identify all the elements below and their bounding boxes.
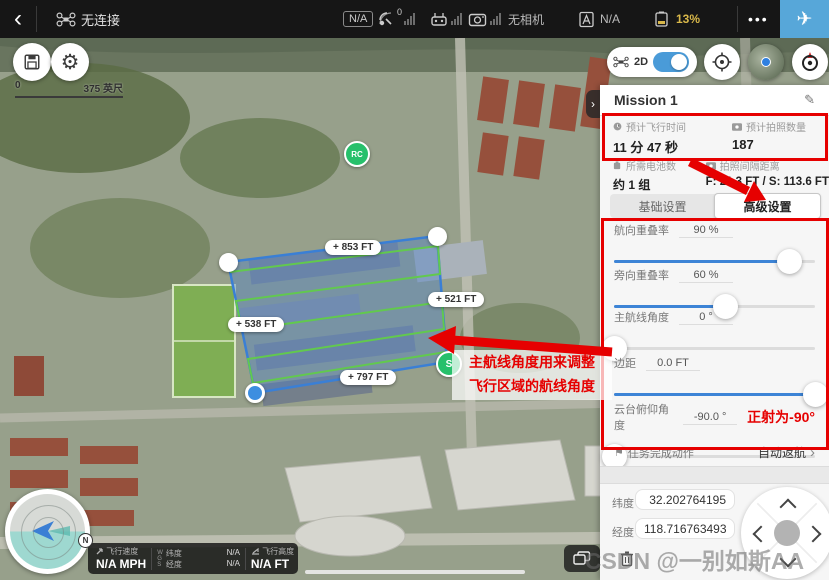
- north-badge: N: [78, 533, 93, 548]
- map-2d-switch[interactable]: [653, 52, 689, 72]
- altitude-label: 飞行高度: [262, 547, 294, 556]
- stat-value: F: 21.3 FT / S: 113.6 FT: [706, 176, 829, 188]
- scale-start-label: 0: [15, 80, 21, 95]
- settings-button[interactable]: ⚙: [51, 43, 89, 81]
- battery-icon: [652, 11, 671, 28]
- camera-icon: [732, 123, 742, 131]
- longitude-input[interactable]: [635, 518, 735, 539]
- slider-label: 主航线角度: [614, 309, 669, 325]
- lat-value: N/A: [227, 548, 240, 559]
- slider-course-overlap: 航向重叠率 90 %: [600, 222, 829, 263]
- slider-label: 旁向重叠率: [614, 267, 669, 283]
- remote-controller-icon: [430, 11, 448, 27]
- panel-collapse-handle[interactable]: ›: [586, 90, 600, 118]
- slider-route-angle: 主航线角度 0 °: [600, 309, 829, 350]
- longitude-label: 经度: [612, 524, 634, 540]
- edge-distance-label-left: + 538 FT: [228, 317, 284, 332]
- map-nudge-dpad[interactable]: [741, 487, 829, 579]
- airplane-icon: ✈: [797, 8, 813, 31]
- polygon-vertex-selected[interactable]: [245, 383, 265, 403]
- camera-status-label: 无相机: [508, 11, 544, 28]
- minimap-button[interactable]: [748, 44, 784, 80]
- stat-value: 187: [732, 137, 806, 152]
- speed-icon: [96, 547, 104, 555]
- mission-planner-app: S RC + 853 FT + 521 FT + 538 FT + 797 FT…: [0, 0, 829, 580]
- gps-signal-bars: [404, 13, 415, 25]
- slider-margin: 边距 0.0 FT: [600, 355, 829, 396]
- stat-value: 11 分 47 秒: [613, 137, 728, 156]
- stat-value: 约 1 组: [613, 176, 702, 193]
- minimap-position-dot: [761, 57, 771, 67]
- flight-mode: N/A: [578, 0, 620, 38]
- map-2d-toggle-pill: 2D: [607, 47, 697, 77]
- map-mode-label: 2D: [634, 56, 648, 68]
- lng-value: N/A: [227, 559, 240, 570]
- compass-icon: [798, 50, 822, 74]
- gear-icon: ⚙: [61, 50, 80, 75]
- slider-value-field[interactable]: 0.0 FT: [646, 356, 700, 371]
- slider-track[interactable]: [614, 305, 815, 308]
- aircraft-status: 无连接: [56, 0, 120, 38]
- flight-mode-icon: [578, 11, 595, 28]
- status-na-badge: N/A: [343, 11, 373, 27]
- tab-basic-settings[interactable]: 基础设置: [610, 194, 715, 218]
- mission-header: Mission 1 ✎: [600, 85, 829, 116]
- map-scale-bar: 0 375 英尺: [15, 80, 123, 98]
- compass-reset-button[interactable]: [792, 44, 828, 80]
- back-button[interactable]: ‹: [0, 0, 36, 38]
- home-indicator[interactable]: [305, 570, 525, 574]
- flight-mode-value: N/A: [600, 12, 620, 26]
- slider-label: 边距: [614, 355, 636, 371]
- speed-value: N/A MPH: [96, 557, 146, 571]
- map-layer-button[interactable]: [564, 545, 600, 572]
- camera-icon: [468, 12, 487, 27]
- clock-icon: [613, 122, 622, 131]
- slider-value-field[interactable]: 60 %: [679, 268, 733, 283]
- stat-label: 所需电池数: [626, 158, 676, 173]
- scale-end-label: 375 英尺: [84, 80, 123, 95]
- latitude-label: 纬度: [612, 495, 634, 511]
- slider-side-overlap: 旁向重叠率 60 %: [600, 267, 829, 308]
- battery-percent: 13%: [676, 12, 700, 26]
- panel-divider: [600, 466, 829, 484]
- stat-label: 拍照间隔距离: [720, 158, 780, 173]
- camera-signal: 无相机: [468, 0, 544, 38]
- back-chevron-icon: ‹: [14, 1, 22, 37]
- gps-count: 0: [397, 7, 402, 17]
- drone-icon: [613, 56, 629, 68]
- finish-action-row[interactable]: ⚑ 任务完成动作 自动返航 ›: [600, 444, 829, 461]
- satellite-icon: [378, 11, 395, 27]
- drone-icon: [56, 12, 76, 27]
- mission-title: Mission 1: [614, 92, 678, 108]
- slider-value-field[interactable]: -90.0 °: [683, 410, 737, 425]
- speed-label: 飞行速度: [106, 547, 138, 556]
- crosshair-icon: [711, 51, 733, 73]
- slider-value-field[interactable]: 90 %: [679, 223, 733, 238]
- more-menu-button[interactable]: •••: [748, 0, 769, 38]
- edge-distance-label-right: + 521 FT: [428, 292, 484, 307]
- rc-position-marker: RC: [344, 141, 370, 167]
- latitude-input[interactable]: [635, 489, 735, 510]
- gimbal-annotation-note: 正射为-90°: [747, 407, 815, 427]
- slider-label: 云台俯仰角度: [614, 401, 673, 433]
- locate-button[interactable]: [704, 44, 740, 80]
- stat-label: 预计飞行时间: [626, 119, 686, 134]
- slider-label: 航向重叠率: [614, 222, 669, 238]
- slider-value-field[interactable]: 0 °: [679, 310, 733, 325]
- datum-label: WGS: [157, 550, 163, 568]
- chevron-right-icon: ›: [810, 444, 815, 461]
- finish-action-label: 任务完成动作: [628, 445, 694, 461]
- connection-status-label: 无连接: [81, 10, 120, 29]
- start-point-marker[interactable]: S: [436, 351, 462, 377]
- rc-signal-bars: [451, 13, 462, 25]
- status-top-bar: ‹ 无连接 N/A 0: [0, 0, 829, 38]
- takeoff-button[interactable]: ✈: [780, 0, 829, 38]
- lng-label: 经度: [166, 559, 182, 570]
- rc-signal: [430, 0, 462, 38]
- altitude-icon: [251, 547, 260, 555]
- battery-count-icon: [613, 161, 622, 170]
- telemetry-bar: 飞行速度 N/A MPH WGS 纬度 N/A 经度 N/A 飞行高度 N/A …: [88, 543, 298, 574]
- battery-status: 13%: [652, 0, 700, 38]
- stats-row-1: 预计飞行时间 11 分 47 秒 预计拍照数量 187: [600, 119, 829, 156]
- edit-mission-icon[interactable]: ✎: [804, 92, 815, 108]
- slider-track[interactable]: [614, 260, 815, 263]
- camera-signal-bars: [490, 13, 501, 25]
- lat-label: 纬度: [166, 548, 182, 559]
- polygon-vertex[interactable]: [219, 253, 238, 272]
- flight-status-badge: N/A: [343, 0, 373, 38]
- flag-icon: ⚑: [614, 446, 624, 459]
- save-mission-button[interactable]: [13, 43, 51, 81]
- attitude-compass: N: [5, 489, 90, 574]
- edge-distance-label-bottom: + 797 FT: [340, 370, 396, 385]
- altitude-value: N/A FT: [251, 557, 294, 571]
- more-dots-icon: •••: [748, 11, 769, 27]
- layers-icon: [573, 551, 591, 566]
- settings-tabs: 基础设置 高级设置: [610, 194, 820, 218]
- tab-advanced-settings[interactable]: 高级设置: [714, 193, 821, 219]
- finish-action-value: 自动返航: [758, 444, 806, 461]
- polygon-vertex[interactable]: [428, 227, 447, 246]
- slider-track[interactable]: [614, 347, 815, 350]
- gps-status: 0: [378, 0, 415, 38]
- trash-icon[interactable]: [620, 550, 634, 567]
- save-icon: [23, 53, 41, 71]
- camera-interval-icon: [706, 162, 716, 170]
- nudge-center-button[interactable]: [774, 520, 800, 546]
- stat-label: 预计拍照数量: [746, 119, 806, 134]
- edge-distance-label-top: + 853 FT: [325, 240, 381, 255]
- slider-track[interactable]: [614, 393, 815, 396]
- stats-row-2: 所需电池数 约 1 组 拍照间隔距离 F: 21.3 FT / S: 113.6…: [600, 158, 829, 193]
